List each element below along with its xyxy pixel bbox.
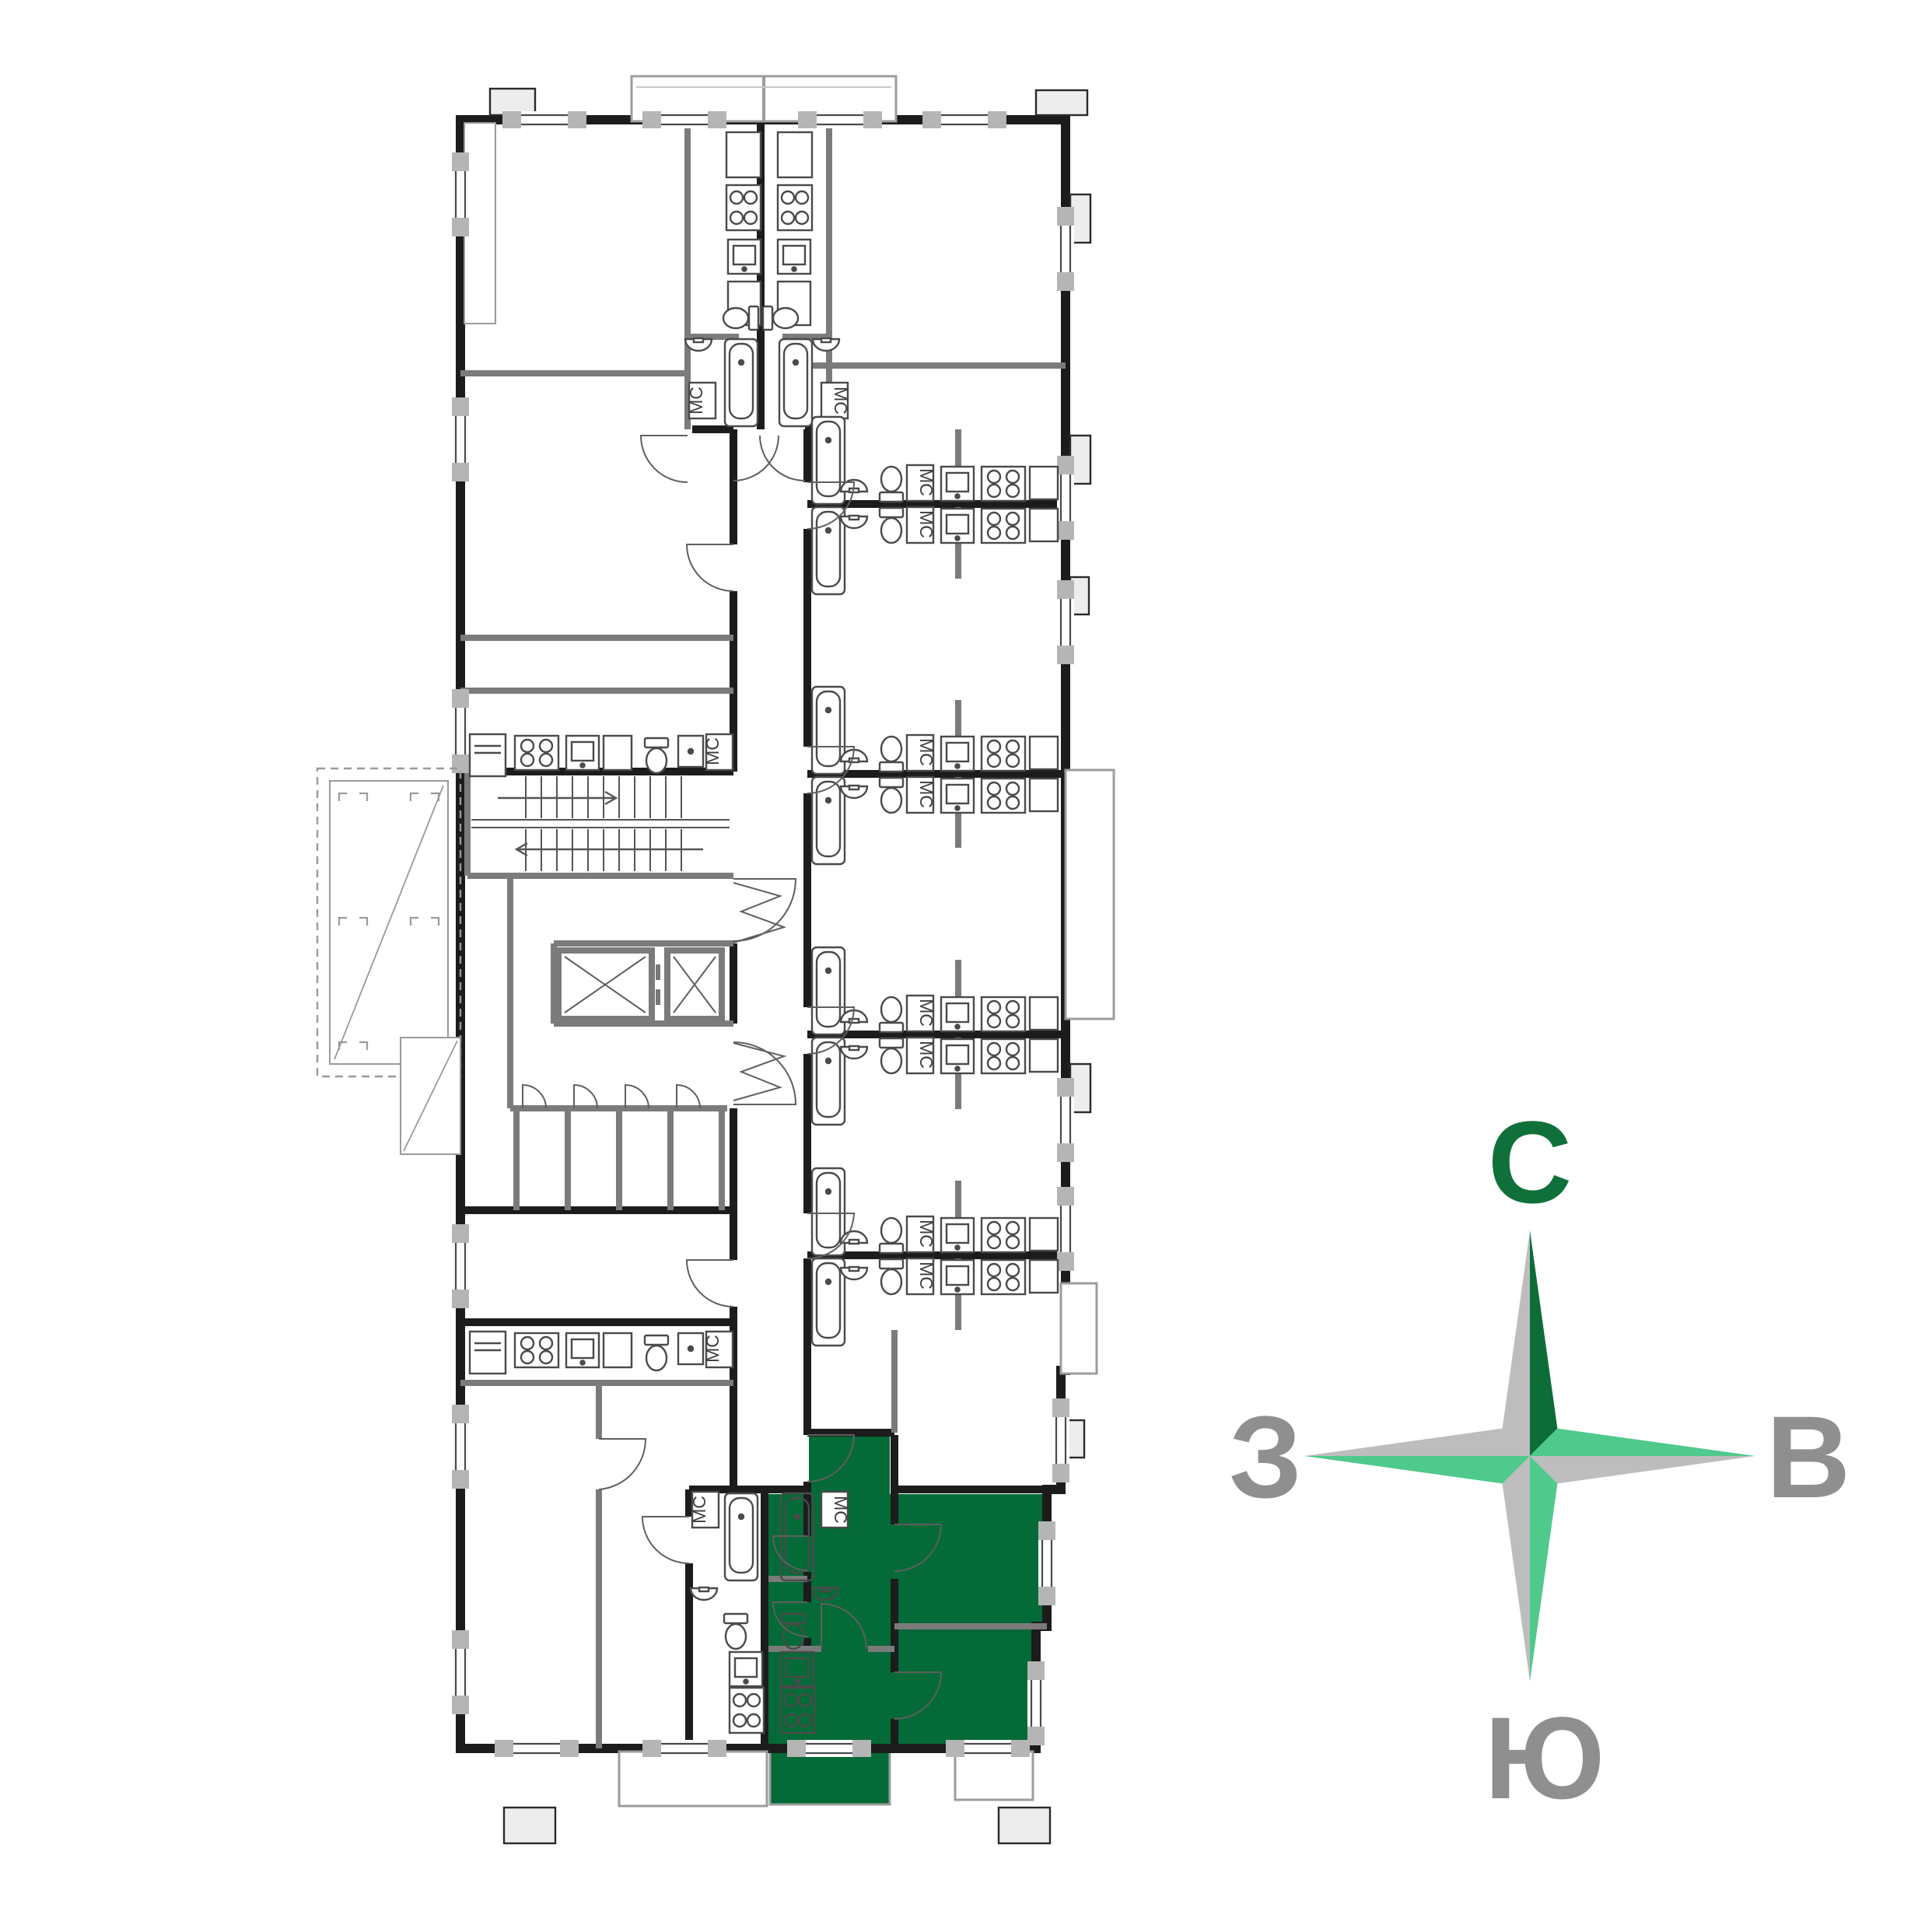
compass-star-south-left bbox=[1503, 1456, 1530, 1682]
compass-star bbox=[1304, 1230, 1755, 1682]
mc-label: МС bbox=[916, 1220, 936, 1248]
kitchen-sink-icon bbox=[941, 1039, 974, 1073]
mc-label: МС bbox=[916, 510, 936, 538]
toilet-icon bbox=[880, 997, 903, 1032]
kitchen-sink-icon bbox=[941, 467, 974, 501]
toilet-icon bbox=[880, 1259, 903, 1294]
mc-label: МС bbox=[831, 1496, 851, 1524]
accordion-door bbox=[733, 1043, 784, 1101]
fridge-icon bbox=[470, 734, 506, 776]
tab-bottom-left bbox=[504, 1808, 555, 1843]
compass-star-east-bottom bbox=[1530, 1456, 1755, 1483]
mc-label: МС bbox=[831, 387, 851, 415]
compass-label-south: Ю bbox=[1485, 1692, 1605, 1823]
stove-icon bbox=[982, 737, 1025, 771]
bathtub-icon bbox=[779, 339, 812, 426]
compass-star-west-bottom bbox=[1304, 1456, 1530, 1483]
stove-icon bbox=[982, 779, 1025, 813]
bathtub-icon bbox=[812, 687, 845, 774]
toilet-icon bbox=[763, 306, 798, 330]
mc-label: МС bbox=[689, 1496, 709, 1524]
bathtub-icon bbox=[725, 339, 758, 426]
kitchen-sink-icon bbox=[566, 736, 599, 770]
kitchen-counter bbox=[1030, 779, 1058, 811]
toilet-icon bbox=[880, 1218, 903, 1253]
kitchen-sink-icon bbox=[728, 240, 761, 274]
basin-icon bbox=[813, 338, 839, 351]
kitchen-cabinet bbox=[778, 132, 812, 177]
compass-label-east: В bbox=[1766, 1391, 1850, 1522]
kitchen-sink-icon bbox=[941, 1260, 974, 1294]
basin-icon bbox=[691, 1587, 717, 1600]
toilet-icon bbox=[723, 306, 758, 330]
bathtub-icon bbox=[812, 1258, 845, 1346]
kitchen-sink-icon bbox=[941, 1218, 974, 1252]
toilet-icon bbox=[724, 1614, 747, 1649]
mc-label: МС bbox=[686, 387, 706, 415]
mc-label: МС bbox=[702, 1335, 723, 1363]
compass-star-west-top bbox=[1304, 1429, 1530, 1456]
stove-icon bbox=[982, 1260, 1025, 1294]
bathtub-icon bbox=[812, 1038, 845, 1125]
kitchen-sink-icon bbox=[941, 997, 974, 1031]
stove-icon bbox=[982, 997, 1025, 1031]
compass-label-north: С bbox=[1488, 1097, 1572, 1227]
mc-label: МС bbox=[916, 1041, 936, 1069]
compass-label-west: З bbox=[1229, 1391, 1302, 1522]
compass-star-east-top bbox=[1530, 1429, 1755, 1456]
accordion-door bbox=[733, 883, 784, 943]
stove-icon bbox=[730, 1688, 764, 1733]
toilet-icon bbox=[880, 467, 903, 502]
kitchen-sink-icon bbox=[941, 779, 974, 813]
compass-star-north-right bbox=[1530, 1230, 1557, 1456]
kitchen-cabinet bbox=[726, 132, 761, 177]
floorplan-canvas: МС МС МС МС МС МС МС МС МС МС МС МС МС М… bbox=[0, 0, 1932, 1932]
fire-escape-structure bbox=[317, 768, 460, 1154]
tab-bottom-right bbox=[999, 1808, 1050, 1843]
bathtub-icon bbox=[812, 417, 845, 504]
kitchen-counter bbox=[604, 736, 632, 770]
stove-icon bbox=[982, 509, 1025, 543]
stairwell bbox=[471, 776, 730, 871]
elevator-door-mark bbox=[656, 964, 660, 980]
right-bay-2 bbox=[1061, 1283, 1097, 1374]
kitchen-sink-icon bbox=[778, 240, 810, 274]
kitchen-counter bbox=[1030, 1260, 1058, 1293]
compass-star-north-left bbox=[1503, 1230, 1530, 1456]
kitchen-sink-icon bbox=[941, 509, 974, 543]
kitchen-counter bbox=[1030, 509, 1058, 541]
toilet-icon bbox=[880, 778, 903, 813]
stove-icon bbox=[982, 467, 1025, 501]
bathtub-icon bbox=[812, 777, 845, 864]
kitchen-counter bbox=[1030, 1218, 1058, 1251]
mc-label: МС bbox=[702, 737, 723, 765]
toilet-icon bbox=[880, 1038, 903, 1073]
stairs-direction-arrows bbox=[498, 792, 703, 856]
stove-icon bbox=[982, 1039, 1025, 1073]
kitchen-sink-icon bbox=[730, 1652, 762, 1686]
toilet-icon bbox=[645, 738, 668, 773]
kitchen-sink-icon bbox=[941, 737, 974, 771]
kitchen-counter bbox=[1030, 737, 1058, 769]
washing-box bbox=[678, 1333, 703, 1364]
stove-icon bbox=[982, 1218, 1025, 1252]
bathtub-icon bbox=[725, 1493, 758, 1580]
highlighted-apartment-balcony[interactable] bbox=[770, 1752, 890, 1804]
stove-icon bbox=[515, 1333, 558, 1367]
toilet-icon bbox=[880, 508, 903, 543]
stove-icon bbox=[515, 736, 558, 770]
bathtub-icon bbox=[812, 947, 845, 1034]
stove-icon bbox=[726, 185, 761, 230]
toilet-icon bbox=[645, 1335, 668, 1370]
compass-star-south-right bbox=[1530, 1456, 1557, 1682]
mc-label: МС bbox=[916, 1262, 936, 1290]
bottom-balcony-white bbox=[619, 1752, 767, 1806]
kitchen-sink-icon bbox=[566, 1333, 599, 1367]
bathtub-icon bbox=[812, 507, 845, 594]
fridge-icon bbox=[470, 1332, 506, 1374]
mc-label: МС bbox=[916, 999, 936, 1027]
right-bay-1 bbox=[1066, 770, 1114, 1019]
washing-box bbox=[678, 736, 703, 767]
bathtub-icon bbox=[812, 1168, 845, 1255]
kitchen-counter bbox=[1030, 467, 1058, 499]
stove-icon bbox=[778, 185, 812, 230]
toilet-icon bbox=[880, 737, 903, 772]
bottom-bay-right bbox=[955, 1752, 1033, 1800]
kitchen-counter bbox=[604, 1333, 632, 1367]
tab-top-left bbox=[490, 89, 535, 115]
floorplan-page: МС МС МС МС МС МС МС МС МС МС МС МС МС М… bbox=[0, 0, 1932, 1932]
elevator-door-mark bbox=[656, 989, 660, 1005]
kitchen-counter bbox=[1030, 997, 1058, 1030]
mc-label: МС bbox=[916, 780, 936, 808]
kitchen-counter bbox=[1030, 1039, 1058, 1072]
mc-label: МС bbox=[916, 738, 936, 766]
elevator-shafts bbox=[558, 950, 722, 1019]
compass-rose: С В З Ю bbox=[1229, 1097, 1850, 1823]
tab-top-right bbox=[1036, 90, 1087, 115]
mc-label: МС bbox=[916, 468, 936, 496]
